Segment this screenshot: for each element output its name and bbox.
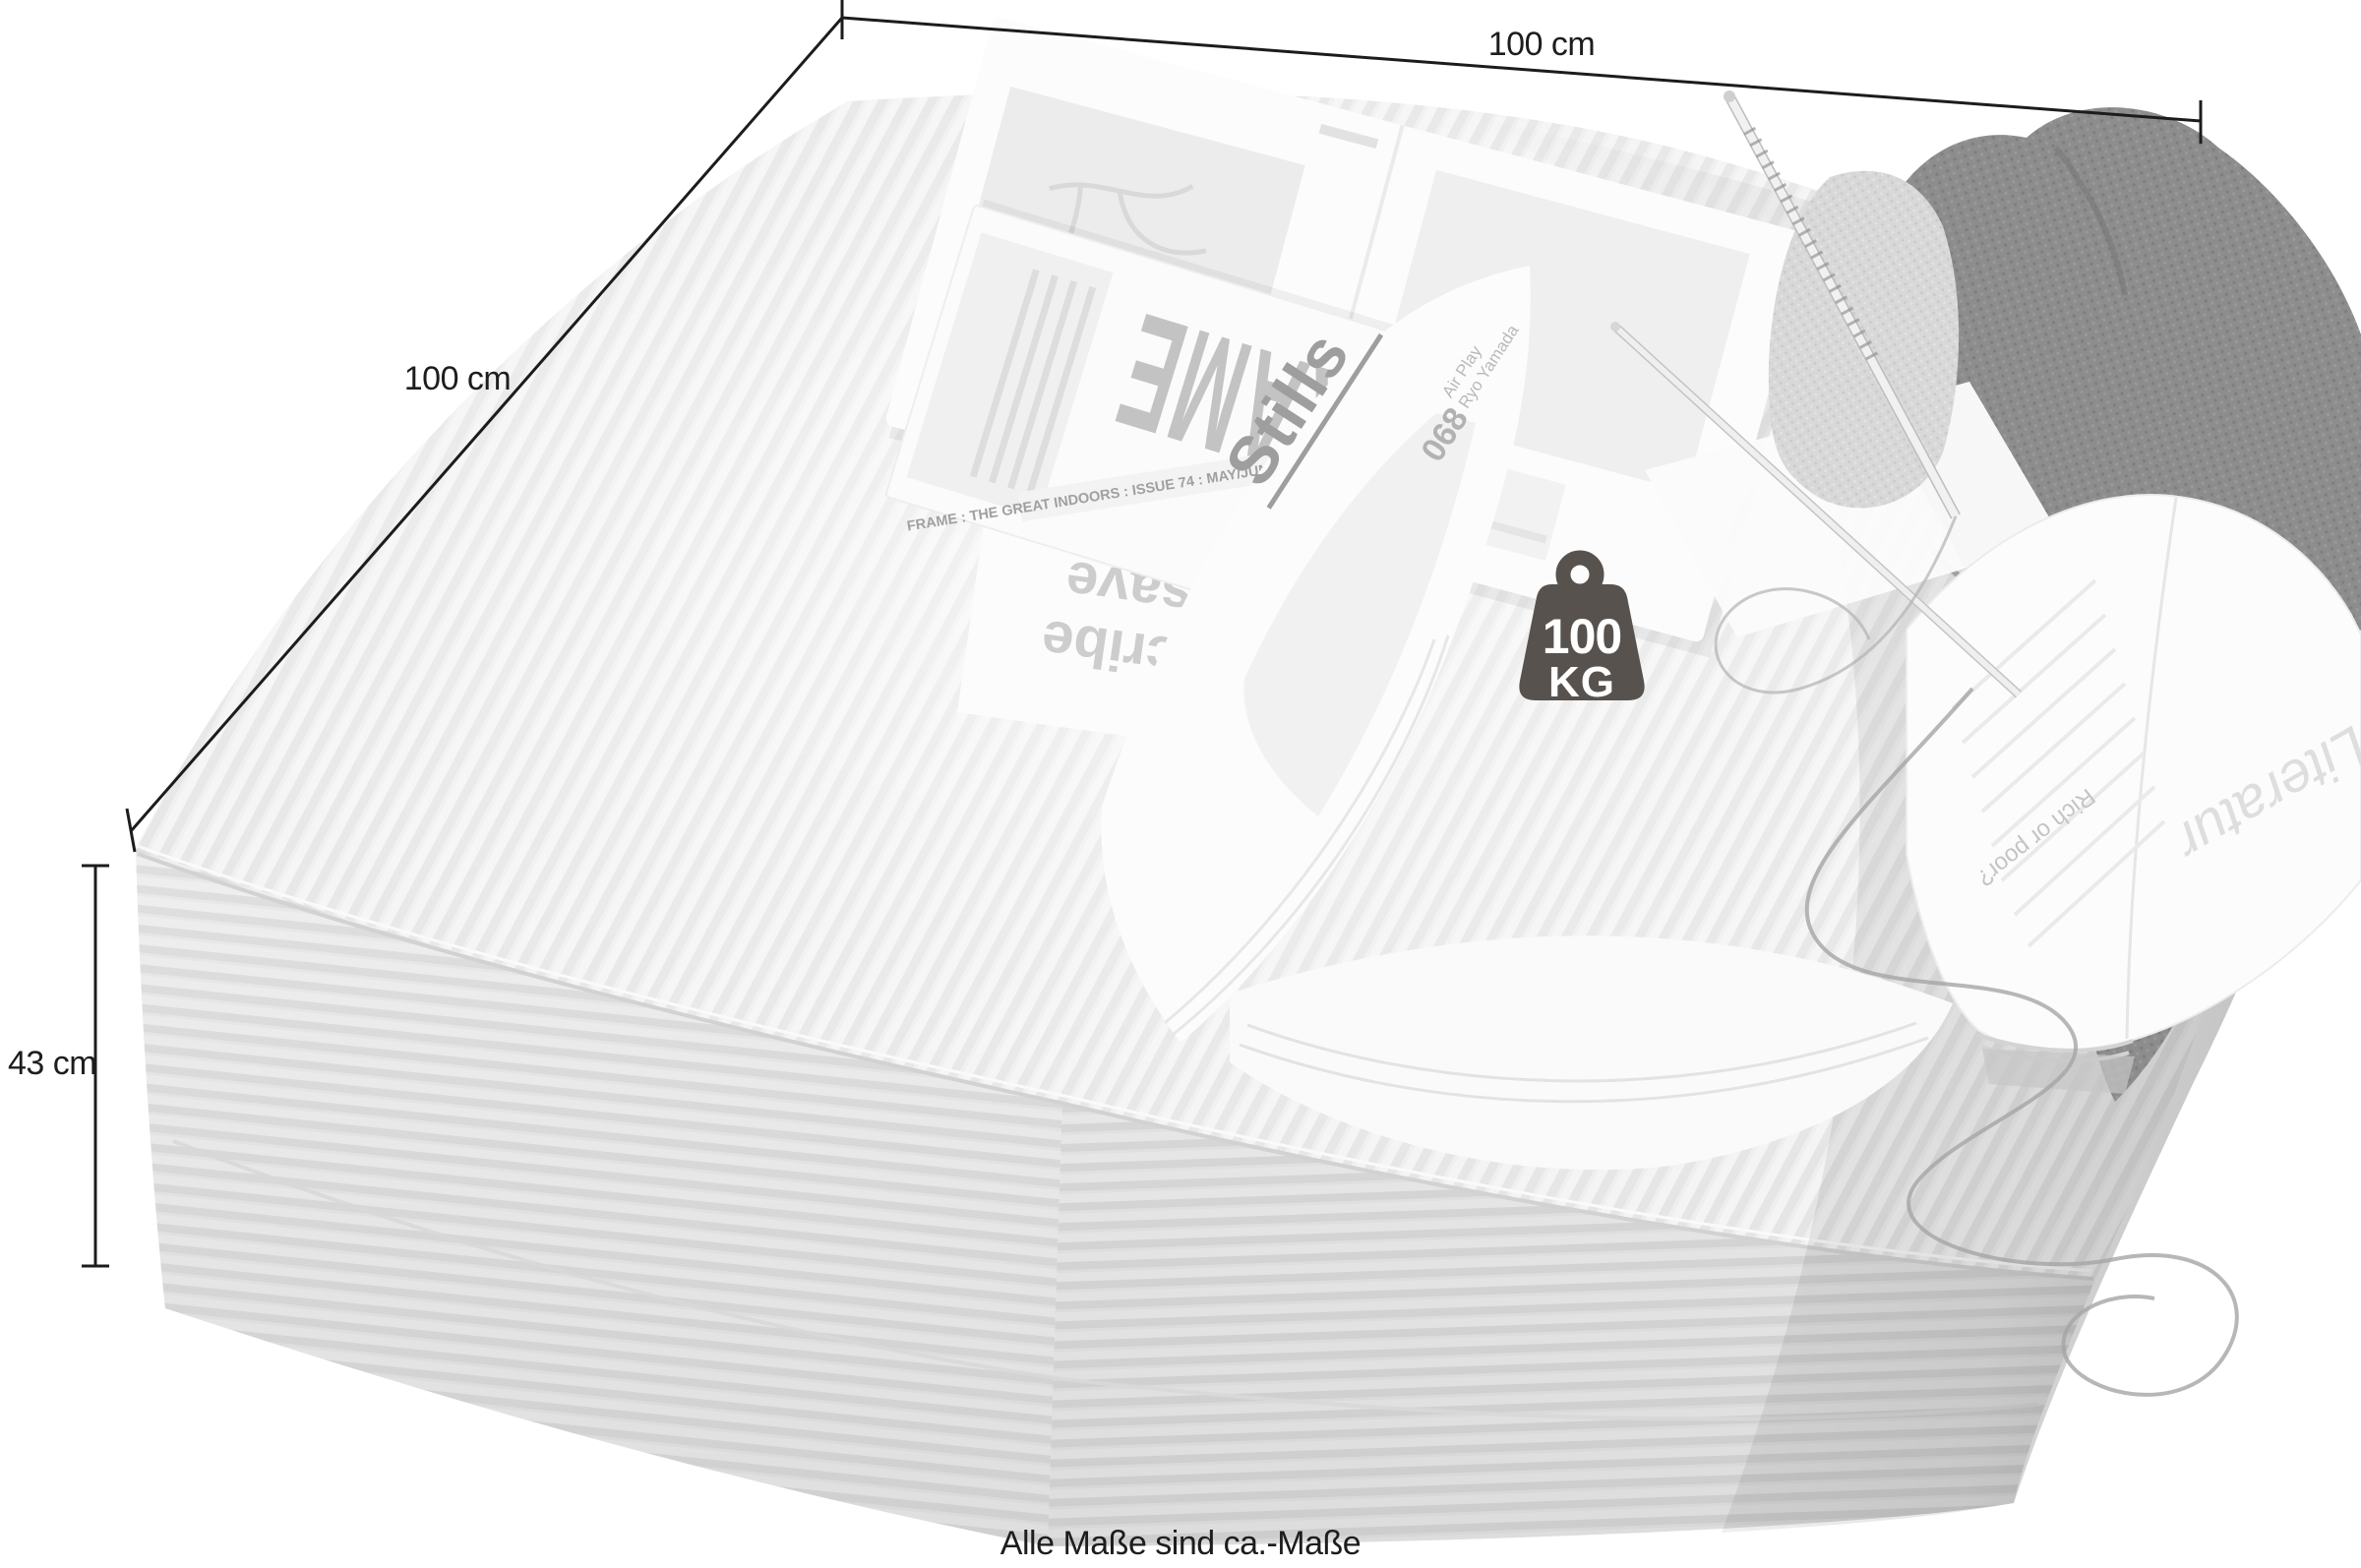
product-dimension-image: Subscribe and save FRAME FRAME : THE GRE… bbox=[0, 0, 2361, 1568]
needle-2-tip bbox=[1610, 322, 1620, 332]
height-label: 43 cm bbox=[8, 1045, 96, 1082]
open-book: Rich or poor? Literatur bbox=[1907, 495, 2361, 1094]
width-label: 100 cm bbox=[1488, 26, 1596, 63]
needle-tip bbox=[1724, 90, 1735, 102]
weight-value: 100 bbox=[1543, 609, 1621, 664]
scene: Subscribe and save FRAME FRAME : THE GRE… bbox=[0, 0, 2361, 1568]
footnote: Alle Maße sind ca.-Maße bbox=[1000, 1525, 1361, 1562]
depth-label: 100 cm bbox=[404, 360, 512, 397]
weight-unit: KG bbox=[1548, 658, 1615, 706]
